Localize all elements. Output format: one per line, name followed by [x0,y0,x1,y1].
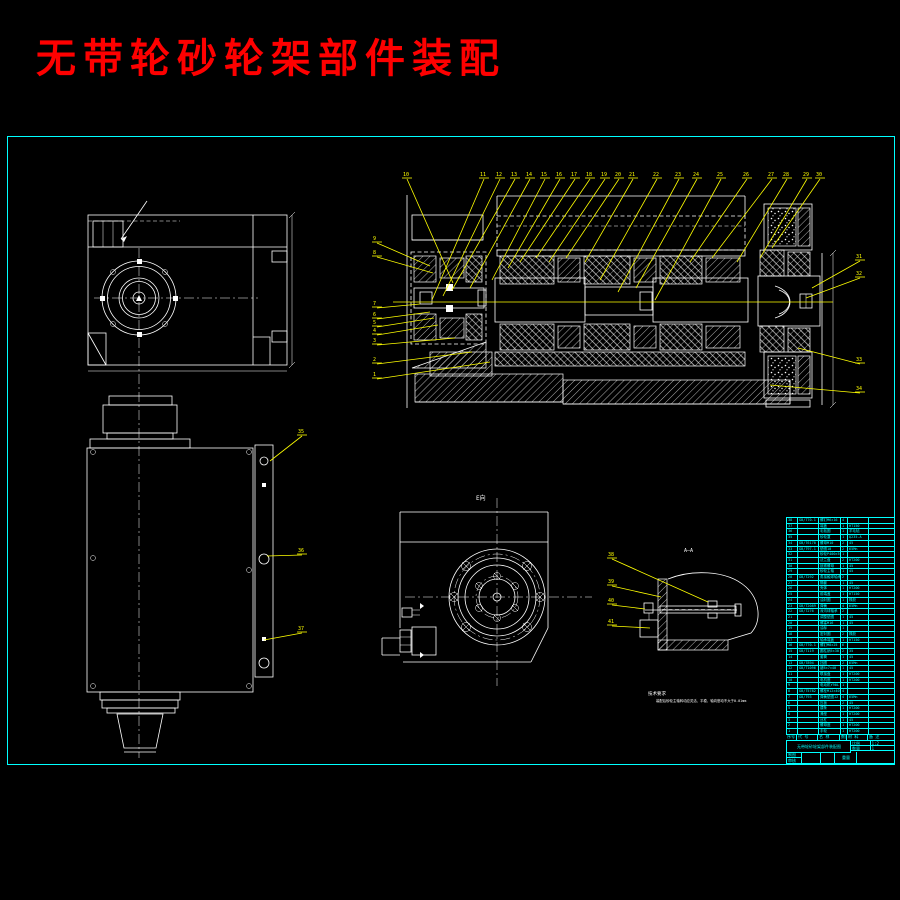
bom-cell [798,621,819,626]
qty-label: 数量 [851,746,871,751]
balloon-number: 27 [768,172,774,178]
balloon-number: 13 [511,172,517,178]
bom-cell: 5 [787,706,798,711]
bom-cell: 法兰盘 [819,558,841,563]
balloon-number: 21 [629,172,635,178]
bom-cell: 25 [787,592,798,597]
balloon-number: 25 [717,172,723,178]
bom-cell: 橡胶 [848,632,869,637]
balloon-number: 19 [601,172,607,178]
bom-cell: 数量 [840,735,847,740]
bom-cell: 1 [841,621,848,626]
bom-cell: HT200 [848,586,869,591]
bom-cell: 1 [841,718,848,723]
bom-cell: 1 [841,524,848,529]
bom-cell [798,638,819,643]
bom-cell: 手轮 [819,729,841,734]
bom-cell: 挡圈 [819,661,841,666]
bom-cell: 4 [841,604,848,609]
bom-cell: 15 [787,649,798,654]
bom-cell [869,666,894,671]
bom-cell: 压板 [819,701,841,706]
draw-name-cell [801,752,821,763]
bom-cell: 11 [787,672,798,677]
bom-cell: 1 [841,586,848,591]
bom-cell [798,655,819,660]
bom-cell: 螺钉M6×16 [819,518,841,523]
bom-cell [869,678,894,683]
bom-cell: 12 [787,666,798,671]
bom-cell [798,558,819,563]
bom-cell [869,547,894,552]
bom-cell [848,518,869,523]
draw-date-cell [821,752,835,763]
bom-cell [798,678,819,683]
bom-cell: 45 [848,655,869,660]
bom-cell: 19 [787,626,798,631]
bom-cell: 34 [787,541,798,546]
title-block: 无带轮砂轮架部件装配图 比例 1:2 数量 1 制图 审核 重量 [786,740,895,764]
bom-cell [869,552,894,557]
balloon-number: 41 [608,619,614,625]
bom-cell: 1 [841,598,848,603]
balloon-number: 3 [373,338,376,344]
bom-cell: 2 [841,575,848,580]
balloon-number: 11 [480,172,486,178]
bom-cell: 27 [787,581,798,586]
bom-cell: 22 [787,609,798,614]
bom-cell [798,535,819,540]
bom-cell: 1 [841,638,848,643]
balloon-number: 40 [608,598,614,604]
bom-cell: 深沟球轴承 [819,609,841,614]
bom-cell: 32 [787,552,798,557]
balloon-number: 34 [856,386,862,392]
bom-cell [798,529,819,534]
balloon-number: 22 [653,172,659,178]
bom-cell [869,649,894,654]
bom-cell: 代 号 [797,735,818,740]
bom-cell: GB/T292 [798,575,819,580]
bom-cell: 垫圈10 [819,547,841,552]
balloon-number: 2 [373,357,376,363]
bom-cell: 键8×7×40 [819,666,841,671]
bom-cell: 35 [787,535,798,540]
bom-cell [798,672,819,677]
bom-cell [798,524,819,529]
bom-cell [798,598,819,603]
bom-cell [869,598,894,603]
leader-line [812,261,860,288]
bom-cell [798,586,819,591]
bom-cell [798,718,819,723]
bom-cell [869,518,894,523]
bom-cell: 36 [787,529,798,534]
bom-cell: 17 [787,638,798,643]
bom-cell: 2 [841,701,848,706]
bom-cell: GB/T894 [798,661,819,666]
bom-cell: 2 [787,723,798,728]
bom-cell [869,535,894,540]
bom-cell: 1 [841,535,848,540]
balloon-number: 1 [373,372,376,378]
bom-cell: HT200 [848,706,869,711]
bom-cell: 6 [787,701,798,706]
bom-cell [869,524,894,529]
section-aa-label: A—A [684,548,693,554]
balloon-number: 5 [373,320,376,326]
bom-cell: 螺塞M16 [819,621,841,626]
check-label: 审核 [787,758,802,763]
balloon-number: 36 [298,548,304,554]
bom-cell [869,661,894,666]
balloon-number: 14 [526,172,532,178]
front-view [88,201,295,392]
bom-cell [869,695,894,700]
bom-cell: 2 [841,609,848,614]
bom-cell [869,672,894,677]
bom-cell: 橡胶 [848,598,869,603]
bom-cell: 圆柱销5×30 [819,649,841,654]
main-section-view [393,195,836,408]
bom-cell [869,558,894,563]
bom-cell: 45 [848,615,869,620]
leader-line [566,179,619,258]
bom-cell: 65Mn [848,547,869,552]
bom-cell [798,701,819,706]
bom-cell: GB/T1096 [798,666,819,671]
bom-cell: 螺栓M12×40 [819,689,841,694]
bom-cell [869,683,894,688]
bom-cell: 滑座 [819,712,841,717]
bom-cell: 1 [841,564,848,569]
bom-cell [869,564,894,569]
notes-body: 装配后砂轮主轴转动应灵活、平稳，轴向窜动不大于0.01mm [656,698,746,703]
leader-line [264,633,302,640]
bom-cell: 1 [841,666,848,671]
bom-cell: 锁紧螺母 [819,564,841,569]
bom-cell: 序号 [786,735,797,740]
balloon-number: 26 [743,172,749,178]
bom-cell: 1 [787,729,798,734]
leader-line [267,555,302,556]
balloon-number: 33 [856,357,862,363]
bom-cell [848,689,869,694]
bom-cell: 镶条 [819,706,841,711]
bom-cell: GB/T70.1 [798,518,819,523]
bom-cell: 45 [848,701,869,706]
bom-cell: 1 [841,712,848,717]
section-aa-detail: A—A [640,548,758,650]
bom-cell: 24 [787,598,798,603]
balloon-number: 24 [693,172,699,178]
bom-cell: 名 称 [818,735,840,740]
bom-cell: HT200 [848,558,869,563]
bom-cell [798,552,819,557]
bom-cell: HT200 [848,672,869,677]
bom-cell [869,638,894,643]
bom-cell: 前端盖 [819,592,841,597]
bom-cell: 14 [787,655,798,660]
bom-rows: 38GB/T70.1螺钉M6×16437端盖1HT15036毛毡圈1羊毛毡35砂… [786,517,895,735]
bom-cell [869,643,894,648]
bom-cell: 备 注 [868,735,893,740]
balloon-number: 17 [571,172,577,178]
bom-cell: GB/T93 [798,695,819,700]
bom-cell [848,552,869,557]
bom-cell [798,564,819,569]
bom-cell [798,712,819,717]
bom-cell [869,689,894,694]
balloon-number: 38 [608,552,614,558]
bom-cell: 65Mn [848,661,869,666]
bom-cell [869,729,894,734]
bom-cell [848,609,869,614]
bom-cell: 45 [848,564,869,569]
bom-cell: HT150 [848,592,869,597]
bom-cell: 羊毛毡 [848,529,869,534]
bom-cell: 1 [841,672,848,677]
balloon-number: 32 [856,271,862,277]
bom-cell: 31 [787,558,798,563]
bom-cell: 弹簧 [819,604,841,609]
balloon-number: 10 [403,172,409,178]
bom-cell: 8 [787,689,798,694]
bom-cell: 毛毡圈 [819,529,841,534]
notes-heading: 技术要求 [648,690,666,697]
bom-cell [848,643,869,648]
bom-cell: 9 [787,683,798,688]
bom-cell [869,712,894,717]
leader-line [270,436,302,461]
bom-cell: 砂轮主轴 [819,569,841,574]
balloon-number: 29 [803,172,809,178]
bom-cell: 1 [841,569,848,574]
bom-cell: 1 [841,655,848,660]
bom-cell: 13 [787,661,798,666]
balloon-number: 12 [496,172,502,178]
balloon-number: 31 [856,254,862,260]
leader-line [585,179,633,262]
bom-cell: 37 [787,524,798,529]
balloon-number: 4 [373,328,376,334]
bom-cell: 30 [787,564,798,569]
bom-cell [869,581,894,586]
bom-cell: 电机座 [819,678,841,683]
bom-cell: 45 [848,581,869,586]
bom-cell: 45 [848,569,869,574]
bom-cell: 砂轮P400×50 [819,552,841,557]
bom-cell: 丝杠 [819,718,841,723]
bom-cell: 65Mn [848,695,869,700]
bom-cell: 18 [787,632,798,637]
bom-cell: 2 [841,649,848,654]
bom-cell: HT200 [848,712,869,717]
bom-cell: 1 [841,615,848,620]
bom-cell: 螺母座 [819,723,841,728]
balloon-number: 18 [586,172,592,178]
bom-cell: 35 [848,649,869,654]
bom-cell: 2 [841,661,848,666]
weight-label: 重量 [835,752,857,763]
bom-cell: 4 [841,689,848,694]
bom-cell: 21 [787,615,798,620]
leader-line [536,179,590,258]
bom-cell: 6 [841,643,848,648]
balloon-number: 37 [298,626,304,632]
bom-cell: 1 [841,723,848,728]
bom-cell: GB/T119 [798,649,819,654]
bom-cell [869,604,894,609]
balloon-number: 20 [615,172,621,178]
org-cell [857,752,894,763]
bom-cell: HT150 [848,524,869,529]
bom-cell: 2 [841,547,848,552]
bom-cell [848,683,869,688]
bom-cell [869,609,894,614]
bom-cell: 弹簧垫圈12 [819,695,841,700]
bom-cell: 1 [841,592,848,597]
balloon-number: 39 [608,579,614,585]
bom-cell: 端盖 [819,524,841,529]
bom-cell: 65Mn [848,604,869,609]
bom-cell: 2 [841,558,848,563]
bom-cell [869,569,894,574]
bom-cell: 45 [848,541,869,546]
bom-cell: 33 [787,547,798,552]
bom-cell [798,569,819,574]
bom-cell: 7 [787,695,798,700]
bom-cell [869,718,894,723]
bom-cell: 轴承端盖 [819,638,841,643]
bom-cell: Q235-A [848,535,869,540]
bom-cell [798,626,819,631]
bom-cell: 1 [841,706,848,711]
leader-line [612,586,661,597]
bom-cell: GB/T70.1 [798,643,819,648]
leader-line [508,179,560,268]
bom-cell: 16 [787,643,798,648]
bom-cell: 1 [841,678,848,683]
side-view [87,392,273,758]
bom-cell: 45 [848,621,869,626]
bom-cell [798,706,819,711]
bom-cell [869,615,894,620]
bom-table: 38GB/T70.1螺钉M6×16437端盖1HT15036毛毡圈1羊毛毡35砂… [786,517,895,741]
bom-cell [869,655,894,660]
bom-cell: GB/T6170 [798,541,819,546]
bom-cell: 电动机Y90L [819,683,841,688]
bom-cell: 油封圈 [819,598,841,603]
qty-value: 1 [871,746,894,751]
bom-cell: 4 [787,712,798,717]
bom-cell: 1 [841,683,848,688]
drawing-linework: E向 [0,0,900,900]
bom-cell: 材 料 [847,735,868,740]
bom-cell [869,592,894,597]
bom-cell: 1 [841,626,848,631]
bom-cell [869,701,894,706]
bom-cell [848,575,869,580]
leader-line [612,605,645,609]
balloon-number: 7 [373,301,376,307]
bom-cell: 45 [848,718,869,723]
bom-cell [798,683,819,688]
bom-cell [869,621,894,626]
bom-cell [798,723,819,728]
bom-cell: HT150 [848,638,869,643]
bom-cell: HT200 [848,678,869,683]
bom-cell [869,529,894,534]
bom-cell: 4 [841,695,848,700]
bom-cell: HT200 [848,729,869,734]
bom-cell: GB/T5782 [798,689,819,694]
bom-cell: 2 [841,541,848,546]
leader-line [549,179,605,262]
balloon-number: 16 [556,172,562,178]
bom-cell [869,706,894,711]
balloon-number: 30 [816,172,822,178]
e-view-label: E向 [476,494,486,502]
bom-cell: 10 [787,678,798,683]
leader-line [612,626,650,628]
leader-line [377,304,420,308]
bom-cell: GB/T97.1 [798,547,819,552]
bom-cell [869,626,894,631]
bom-cell: 壳体 [819,586,841,591]
bom-cell [869,575,894,580]
bom-cell: 38 [787,518,798,523]
bom-cell: 螺母M10 [819,541,841,546]
leader-line [377,243,430,266]
bom-cell: 密封圈 [819,632,841,637]
bom-cell: 26 [787,586,798,591]
bom-cell: 28 [787,575,798,580]
bom-cell [798,632,819,637]
balloon-number: 6 [373,312,376,318]
bom-cell: 23 [787,604,798,609]
bom-cell: 调整垫圈 [819,615,841,620]
bom-cell: 1 [841,552,848,557]
bom-cell: 20 [787,621,798,626]
bom-cell: 角接触球轴承 [819,575,841,580]
leader-line [520,179,575,262]
balloon-number: 28 [783,172,789,178]
bom-cell [848,626,869,631]
bom-cell: GB/T276 [798,609,819,614]
balloon-number: 35 [298,429,304,435]
bom-cell [869,723,894,728]
bom-cell [798,592,819,597]
bom-cell: 螺钉M8×25 [819,643,841,648]
bom-cell [869,632,894,637]
bom-cell: 1 [841,529,848,534]
balloon-number: 23 [675,172,681,178]
bom-cell: GB/T2089 [798,604,819,609]
bom-cell: 29 [787,569,798,574]
bom-cell: 联接盘 [819,672,841,677]
bom-cell: 套筒 [819,655,841,660]
bom-cell: 隔套 [819,581,841,586]
balloon-number: 15 [541,172,547,178]
bom-cell [798,581,819,586]
e-view: E向 [382,494,592,686]
bom-cell: 砂轮罩 [819,535,841,540]
balloon-number: 9 [373,236,376,242]
bom-cell [869,541,894,546]
bom-cell: 2 [841,632,848,637]
bom-cell [798,615,819,620]
